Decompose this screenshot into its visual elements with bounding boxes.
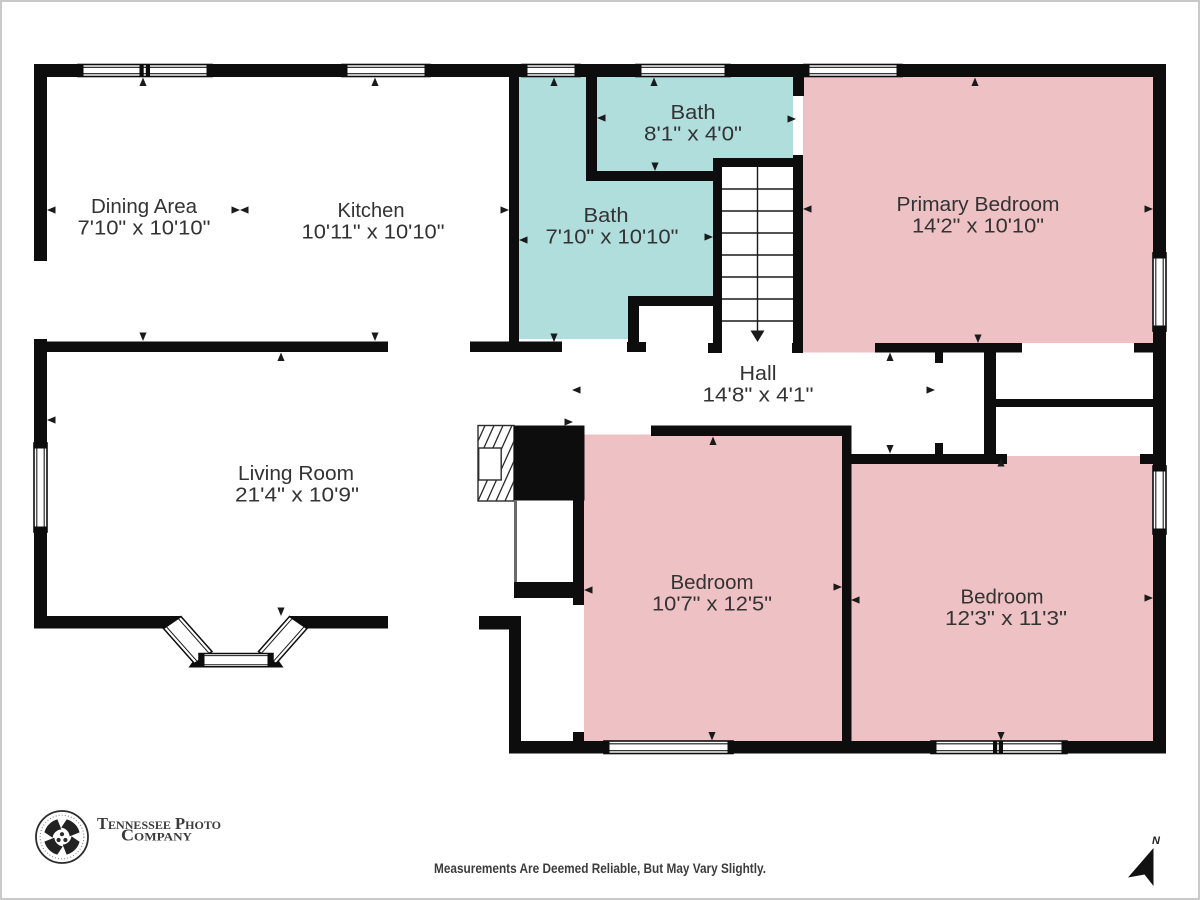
svg-text:Living Room: Living Room	[238, 462, 354, 485]
svg-text:Primary Bedroom: Primary Bedroom	[897, 193, 1060, 216]
svg-text:7'10" x 10'10": 7'10" x 10'10"	[78, 217, 211, 240]
svg-text:7'10" x 10'10": 7'10" x 10'10"	[546, 226, 679, 249]
svg-text:14'8" x 4'1": 14'8" x 4'1"	[703, 384, 814, 407]
svg-text:8'1" x 4'0": 8'1" x 4'0"	[644, 123, 742, 146]
svg-text:12'3" x 11'3": 12'3" x 11'3"	[945, 607, 1067, 630]
svg-text:10'11" x 10'10": 10'11" x 10'10"	[302, 221, 445, 244]
svg-text:14'2" x 10'10": 14'2" x 10'10"	[912, 215, 1044, 238]
svg-text:Bath: Bath	[671, 101, 716, 124]
svg-text:Bedroom: Bedroom	[961, 586, 1044, 609]
svg-text:21'4" x 10'9": 21'4" x 10'9"	[235, 484, 359, 507]
svg-text:Bedroom: Bedroom	[671, 571, 754, 594]
svg-text:N: N	[1152, 835, 1161, 847]
svg-text:Bath: Bath	[584, 204, 629, 227]
svg-text:Measurements Are Deemed Reliab: Measurements Are Deemed Reliable, But Ma…	[434, 860, 766, 876]
svg-text:Company: Company	[121, 826, 192, 845]
svg-text:Kitchen: Kitchen	[338, 199, 405, 222]
svg-text:10'7" x 12'5": 10'7" x 12'5"	[652, 593, 772, 616]
svg-text:Dining Area: Dining Area	[91, 195, 198, 218]
svg-text:Hall: Hall	[740, 362, 777, 385]
